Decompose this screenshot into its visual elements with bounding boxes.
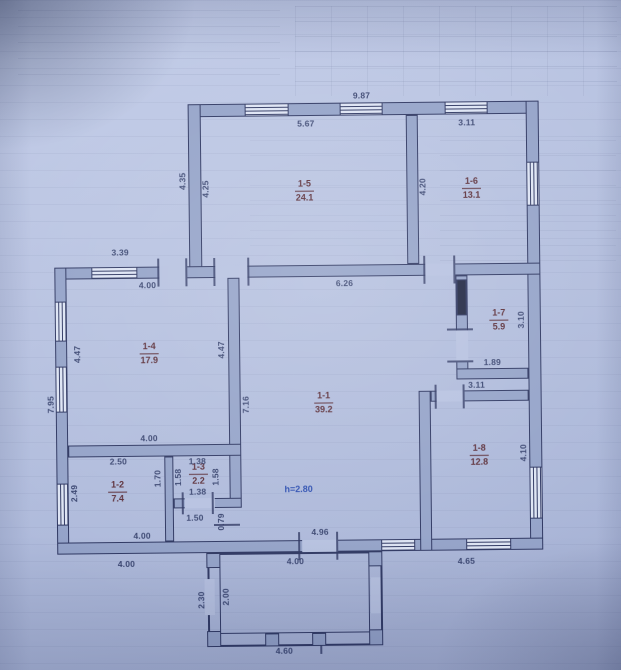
window-symbol bbox=[57, 484, 69, 526]
porch-post bbox=[265, 633, 279, 646]
room-label-1-6: 1-6 13.1 bbox=[462, 176, 481, 201]
porch-post bbox=[312, 633, 326, 646]
room-number: 1-7 bbox=[489, 308, 508, 321]
dimension-label: 4.25 bbox=[201, 180, 210, 197]
door-opening bbox=[425, 263, 455, 275]
dimension-label: 1.50 bbox=[186, 514, 203, 523]
dimension-label: 0.79 bbox=[217, 513, 226, 530]
dimension-label: 4.60 bbox=[276, 647, 293, 656]
room-area: 5.9 bbox=[489, 320, 508, 332]
dimension-tick bbox=[185, 258, 187, 286]
dimension-label: 3.11 bbox=[458, 118, 475, 127]
dimension-label: 4.47 bbox=[73, 346, 82, 363]
room-label-1-2: 1-2 7.4 bbox=[108, 480, 127, 505]
room-area: 17.9 bbox=[140, 354, 159, 366]
porch-post bbox=[207, 631, 221, 647]
room-area: 7.4 bbox=[108, 492, 127, 504]
dimension-label: 7.95 bbox=[46, 396, 55, 413]
window-symbol bbox=[466, 538, 511, 550]
dimension-label: 3.10 bbox=[517, 311, 526, 328]
window-symbol bbox=[445, 101, 488, 114]
window-symbol bbox=[526, 162, 539, 206]
room-label-1-1: 1-1 39.2 bbox=[314, 390, 333, 415]
dimension-label: 9.87 bbox=[353, 91, 370, 100]
dimension-tick bbox=[447, 328, 473, 330]
dimension-label: 4.65 bbox=[458, 557, 475, 566]
dimension-label: 4.00 bbox=[139, 281, 156, 290]
wall-right-of-1-4 bbox=[227, 278, 241, 508]
wall-below-1-4 bbox=[68, 444, 241, 458]
room-label-1-4: 1-4 17.9 bbox=[140, 341, 159, 366]
dimension-label: 1.38 bbox=[189, 457, 206, 466]
dimension-label: 2.00 bbox=[221, 588, 230, 605]
window-symbol bbox=[55, 302, 67, 342]
dimension-label: 6.26 bbox=[336, 279, 353, 288]
dimension-tick bbox=[453, 255, 455, 283]
dimension-tick bbox=[213, 258, 215, 286]
porch-post bbox=[369, 629, 383, 645]
dimension-tick bbox=[247, 258, 249, 286]
dimension-tick bbox=[423, 256, 425, 284]
window-symbol bbox=[381, 539, 415, 551]
dimension-label: 4.00 bbox=[140, 434, 157, 443]
dimension-label: 4.00 bbox=[118, 560, 135, 569]
dimension-label: 3.39 bbox=[111, 249, 128, 258]
porch-post bbox=[206, 553, 220, 568]
dimension-label: 5.67 bbox=[297, 120, 314, 129]
room-number: 1-1 bbox=[314, 390, 333, 403]
dimension-label: 4.00 bbox=[133, 531, 150, 540]
room-number: 1-4 bbox=[140, 341, 159, 354]
window-symbol bbox=[245, 103, 289, 116]
dimension-tick bbox=[212, 492, 214, 514]
room-label-1-8: 1-8 12.8 bbox=[470, 443, 489, 468]
dimension-label: 4.47 bbox=[217, 341, 226, 358]
window-symbol bbox=[91, 267, 137, 279]
dimension-label: 4.10 bbox=[519, 444, 528, 461]
dimension-label: 1.58 bbox=[211, 468, 220, 485]
room-area: 24.1 bbox=[295, 191, 314, 203]
room-number: 1-6 bbox=[462, 176, 481, 189]
dimension-label: 4.96 bbox=[311, 528, 328, 537]
dimension-tick bbox=[463, 384, 465, 408]
floor-plan: 1-5 24.1 1-6 13.1 1-4 17.9 1-1 39.2 1-7 … bbox=[0, 0, 621, 670]
porch-opening bbox=[371, 577, 381, 613]
room-number: 1-2 bbox=[108, 480, 127, 493]
dimension-label: 4.20 bbox=[418, 178, 427, 195]
door-opening bbox=[456, 330, 468, 362]
ceiling-height-note: h=2.80 bbox=[284, 484, 312, 494]
door-opening bbox=[302, 540, 338, 552]
dimension-tick bbox=[435, 385, 437, 409]
dimension-label: 1.38 bbox=[189, 488, 206, 497]
door-opening bbox=[185, 498, 215, 508]
dimension-label: 1.58 bbox=[174, 469, 183, 486]
room-area: 2.2 bbox=[189, 475, 208, 487]
wall-left-of-1-8 bbox=[419, 391, 433, 551]
room-label-1-5: 1-5 24.1 bbox=[295, 179, 314, 204]
dimension-label: 4.35 bbox=[178, 173, 187, 190]
dimension-label: 1.89 bbox=[484, 358, 501, 367]
dimension-tick bbox=[182, 492, 184, 514]
dimension-tick bbox=[447, 360, 473, 362]
vent-shaft bbox=[456, 279, 466, 315]
wall-below-1-7 bbox=[456, 368, 528, 380]
room-number: 1-5 bbox=[295, 179, 314, 192]
room-area: 39.2 bbox=[314, 403, 333, 415]
dimension-label: 3.11 bbox=[468, 381, 485, 390]
dimension-tick bbox=[157, 259, 159, 287]
window-symbol bbox=[55, 367, 67, 413]
door-opening bbox=[215, 266, 247, 278]
door-opening bbox=[159, 266, 187, 278]
window-symbol bbox=[529, 467, 543, 519]
dimension-label: 1.70 bbox=[153, 470, 162, 487]
door-opening bbox=[437, 390, 465, 401]
room-number: 1-8 bbox=[470, 443, 489, 456]
dimension-label: 7.16 bbox=[241, 396, 250, 413]
porch-post bbox=[368, 551, 382, 566]
room-area: 13.1 bbox=[462, 189, 481, 201]
scanned-floor-plan-photo: 1-5 24.1 1-6 13.1 1-4 17.9 1-1 39.2 1-7 … bbox=[0, 0, 621, 670]
dimension-label: 4.00 bbox=[287, 557, 304, 566]
room-label-1-7: 1-7 5.9 bbox=[489, 308, 508, 333]
room-area: 12.8 bbox=[470, 456, 489, 468]
dimension-label: 2.50 bbox=[110, 458, 127, 467]
window-symbol bbox=[340, 102, 383, 115]
dimension-label: 2.49 bbox=[70, 485, 79, 502]
dimension-label: 2.30 bbox=[197, 591, 206, 608]
